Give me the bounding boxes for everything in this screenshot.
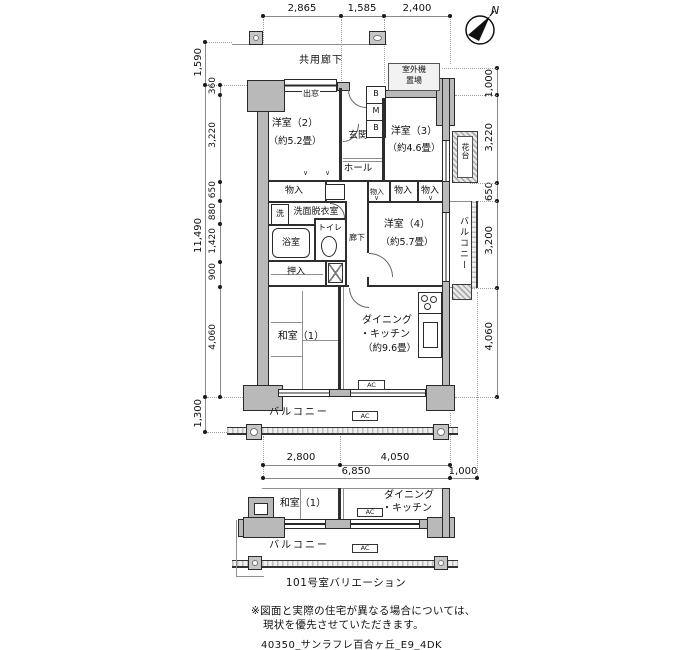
- toilet-bowl: [321, 236, 337, 257]
- dim-label: 2,800: [287, 452, 316, 463]
- balcony-corner-block: [452, 284, 472, 300]
- partition: [382, 98, 385, 182]
- dim-label: 1,590: [194, 48, 204, 77]
- door-arc-dk: [349, 288, 369, 308]
- fold-door-mark: ∨: [303, 170, 308, 177]
- extension-line: [340, 436, 341, 464]
- entrance-label: 玄関: [348, 131, 367, 142]
- meter-box-letter: B: [373, 123, 379, 132]
- variation-balcony-railing: [232, 560, 458, 568]
- variation-ac-dk: AC: [357, 508, 383, 517]
- dim-tick: [218, 93, 222, 97]
- dim-tick: [218, 199, 222, 203]
- dim-tick: [218, 395, 222, 399]
- tatami-line: [271, 322, 302, 323]
- bay-window-label: 出窓: [302, 89, 320, 98]
- balcony-bottom-label: バルコニー: [269, 407, 329, 419]
- tatami-line: [271, 356, 302, 357]
- dim-tick: [261, 476, 265, 480]
- room4-size: （約5.7畳）: [380, 238, 433, 249]
- outdoor-unit-label: 室外機: [402, 65, 426, 74]
- variation-left-line: [236, 576, 264, 577]
- compass-north-label: N: [491, 4, 499, 17]
- variation-partition-line: [343, 488, 344, 521]
- window-japanese-room: [278, 389, 330, 397]
- partition: [389, 182, 391, 202]
- dim-tick: [261, 14, 265, 18]
- dim-tick: [382, 14, 386, 18]
- variation-window-dk: [350, 519, 420, 529]
- partition: [339, 88, 342, 182]
- dim-label: 11,490: [194, 218, 204, 253]
- dim-label: 900: [209, 263, 218, 280]
- extension-line: [470, 183, 497, 184]
- meter-box-letter: M: [373, 106, 380, 115]
- floor-plan-page: N 2,865 1,585 2,400 1,590 11,490 1,300 3…: [0, 0, 700, 650]
- partition: [269, 260, 347, 262]
- variation-dk-label: ダイニング: [384, 490, 434, 502]
- stove-burner: [430, 296, 437, 303]
- note-line2: 現状を優先させていただきます。: [263, 617, 424, 632]
- extension-line: [477, 292, 478, 476]
- extension-line: [341, 19, 342, 81]
- storage-label: 物入: [421, 186, 439, 196]
- dim-tick: [218, 83, 222, 87]
- balcony-right-label: バルコニー: [457, 216, 470, 271]
- dim-label: 4,050: [381, 452, 410, 463]
- variation-balcony-label: バルコニー: [269, 540, 329, 552]
- dim-label: 1,000: [449, 466, 478, 477]
- variation-dk-label: ・キッチン: [382, 503, 432, 515]
- storage-label: 物入: [370, 188, 384, 196]
- dim-label: 4,060: [209, 324, 218, 350]
- dim-line: [220, 85, 221, 397]
- compass-north-icon: N: [458, 2, 504, 48]
- flower-stand-label: 花台: [460, 143, 471, 159]
- partition: [367, 201, 369, 253]
- partition: [367, 182, 369, 202]
- wall-top-room3: [384, 90, 438, 98]
- toilet-label: トイレ: [318, 223, 342, 232]
- outdoor-unit-label: 置場: [406, 76, 422, 85]
- dim-label: 360: [209, 77, 218, 94]
- balcony-right-railing: [471, 201, 478, 288]
- stove-burner: [424, 303, 431, 310]
- wall-left: [257, 85, 269, 397]
- dim-label: 2,865: [288, 3, 317, 14]
- extension-line: [455, 397, 497, 398]
- plan-footer-id: 40350_サンラフレ百合ヶ丘_E9_4DK: [261, 636, 442, 650]
- partition: [314, 218, 345, 220]
- variation-caption: 101号室バリエーション: [286, 577, 406, 589]
- door-arc-room4: [369, 253, 393, 277]
- hall-label: ホール: [344, 164, 373, 175]
- stove-burner: [421, 295, 428, 302]
- dim-label: 3,200: [485, 226, 495, 255]
- washroom-label: 洗面脱衣室: [293, 207, 338, 217]
- variation-balcony-post: [248, 556, 262, 570]
- room2-label: 洋室（2）: [272, 118, 318, 130]
- partition-sliding-line: [343, 287, 344, 389]
- note-line1: ※図面と実際の住宅が異なる場合については、: [251, 603, 476, 618]
- corridor-post: [369, 31, 386, 45]
- dim-label: 6,850: [342, 466, 371, 477]
- dim-label: 1,585: [348, 3, 377, 14]
- dim-label: 3,220: [485, 123, 495, 152]
- dk-size: （約9.6畳）: [363, 344, 416, 355]
- variation-japanese-room-label: 和室（1）: [280, 498, 326, 510]
- ac-unit-dk: AC: [358, 380, 385, 390]
- corridor-label: 共用廊下: [299, 55, 343, 67]
- extension-line: [455, 95, 497, 96]
- dim-label: 1,300: [194, 399, 204, 428]
- extension-line: [478, 201, 497, 202]
- ac-unit-balcony: AC: [352, 411, 378, 421]
- dim-line: [263, 478, 477, 479]
- partition-sliding: [338, 287, 341, 389]
- variation-partition-sliding: [338, 488, 341, 521]
- variation-pillar-left: [243, 517, 285, 538]
- dim-line: [497, 68, 498, 397]
- washer-label: 洗: [276, 209, 284, 218]
- dim-label: 650: [209, 181, 218, 198]
- variation-balcony-post: [434, 556, 448, 570]
- bath-label: 浴室: [282, 238, 300, 248]
- extension-line: [384, 19, 385, 83]
- closet-label: 押入: [287, 267, 305, 277]
- variation-left-line: [236, 520, 237, 577]
- variation-wall-right: [442, 488, 450, 538]
- dim-label: 880: [209, 203, 218, 220]
- dim-label: 2,400: [403, 3, 432, 14]
- extension-line: [263, 436, 264, 476]
- dim-line: [205, 42, 206, 432]
- extension-line: [263, 19, 264, 43]
- balcony-post: [246, 424, 262, 440]
- balcony-right-edge: [450, 201, 472, 202]
- balcony-post: [433, 424, 449, 440]
- storage-label: 物入: [394, 186, 412, 196]
- door-arc-entrance: [348, 90, 366, 108]
- dim-line: [263, 16, 450, 17]
- wall-pillar-bottomright: [426, 385, 455, 411]
- extension-line: [472, 288, 497, 289]
- variation-ac-balcony: AC: [352, 544, 378, 553]
- partition: [314, 218, 316, 262]
- shaft-box: [328, 263, 343, 283]
- dim-tick: [218, 260, 222, 264]
- dim-tick: [261, 463, 265, 467]
- shoe-cabinet: [325, 184, 345, 200]
- fold-door-mark: ∨: [325, 170, 330, 177]
- partition: [325, 262, 327, 287]
- dim-label: 1,420: [209, 228, 218, 254]
- dk-label: ダイニング: [362, 315, 412, 327]
- dim-label: 3,220: [209, 122, 218, 148]
- partition: [345, 201, 347, 287]
- extension-line: [442, 68, 497, 69]
- window-room4: [442, 212, 450, 282]
- dim-tick: [218, 285, 222, 289]
- room3-label: 洋室（3）: [391, 126, 437, 138]
- entrance-step-line: [343, 161, 382, 162]
- room2-size: （約5.2畳）: [268, 137, 321, 148]
- window-room3: [442, 140, 450, 182]
- dim-tick: [339, 14, 343, 18]
- fold-door-mark: ∨: [374, 195, 379, 202]
- variation-pillar-right: [427, 517, 455, 538]
- dim-tick: [448, 14, 452, 18]
- dim-label: 650: [485, 182, 495, 201]
- storage-label: 物入: [285, 186, 303, 196]
- dim-label: 4,060: [485, 322, 495, 351]
- dim-label: 1,000: [485, 69, 495, 98]
- room3-size: （約4.6畳）: [387, 144, 440, 155]
- hallway-label: 廊下: [349, 233, 365, 242]
- wall-pillar-topleft: [247, 80, 285, 112]
- partition: [367, 285, 442, 287]
- japanese-room-label: 和室（1）: [278, 331, 324, 343]
- entrance-step-line: [343, 158, 382, 159]
- partition: [417, 182, 419, 202]
- dk-label: ・キッチン: [360, 329, 410, 341]
- kitchen-sink: [423, 322, 438, 348]
- window-dining-kitchen: [350, 389, 426, 397]
- room4-label: 洋室（4）: [384, 219, 430, 231]
- extension-line: [207, 42, 232, 43]
- variation-top-line: [262, 488, 450, 489]
- dim-tick: [218, 180, 222, 184]
- meter-box-letter: B: [373, 89, 379, 98]
- extension-line: [450, 19, 451, 64]
- dim-tick: [218, 222, 222, 226]
- partition: [269, 285, 349, 287]
- corridor-post: [249, 31, 263, 45]
